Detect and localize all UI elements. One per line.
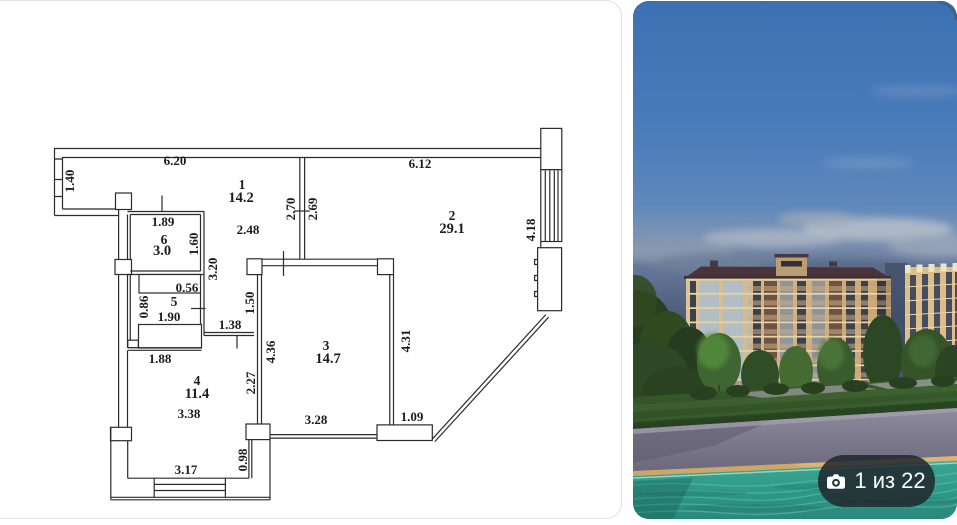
svg-text:1.89: 1.89 bbox=[152, 214, 175, 229]
svg-text:1.90: 1.90 bbox=[158, 309, 181, 324]
svg-text:3.0: 3.0 bbox=[153, 243, 171, 259]
svg-text:3.28: 3.28 bbox=[305, 412, 328, 427]
svg-text:2.27: 2.27 bbox=[243, 371, 258, 394]
svg-text:4.31: 4.31 bbox=[398, 330, 413, 353]
svg-text:1.50: 1.50 bbox=[242, 292, 257, 315]
svg-text:14.7: 14.7 bbox=[315, 351, 340, 367]
svg-text:4.18: 4.18 bbox=[523, 218, 538, 241]
svg-text:0.56: 0.56 bbox=[176, 280, 199, 295]
svg-text:11.4: 11.4 bbox=[185, 386, 210, 402]
svg-text:2.70: 2.70 bbox=[283, 198, 298, 221]
svg-text:6.12: 6.12 bbox=[409, 156, 432, 171]
svg-text:1.09: 1.09 bbox=[401, 409, 424, 424]
svg-text:14.2: 14.2 bbox=[228, 190, 253, 206]
svg-text:3.20: 3.20 bbox=[205, 258, 220, 281]
svg-text:5: 5 bbox=[171, 294, 178, 309]
svg-text:1.38: 1.38 bbox=[219, 317, 242, 332]
svg-text:6.20: 6.20 bbox=[164, 153, 187, 168]
svg-text:0.98: 0.98 bbox=[235, 448, 250, 471]
svg-text:2.48: 2.48 bbox=[237, 222, 260, 237]
svg-text:4.36: 4.36 bbox=[263, 340, 278, 363]
svg-text:3.17: 3.17 bbox=[175, 462, 198, 477]
svg-text:3.38: 3.38 bbox=[178, 406, 201, 421]
svg-text:1.60: 1.60 bbox=[186, 233, 201, 256]
svg-text:1.40: 1.40 bbox=[62, 170, 77, 193]
svg-text:1.88: 1.88 bbox=[149, 351, 172, 366]
svg-text:29.1: 29.1 bbox=[439, 221, 464, 237]
svg-text:2.69: 2.69 bbox=[305, 197, 320, 220]
svg-text:0.86: 0.86 bbox=[136, 295, 151, 318]
